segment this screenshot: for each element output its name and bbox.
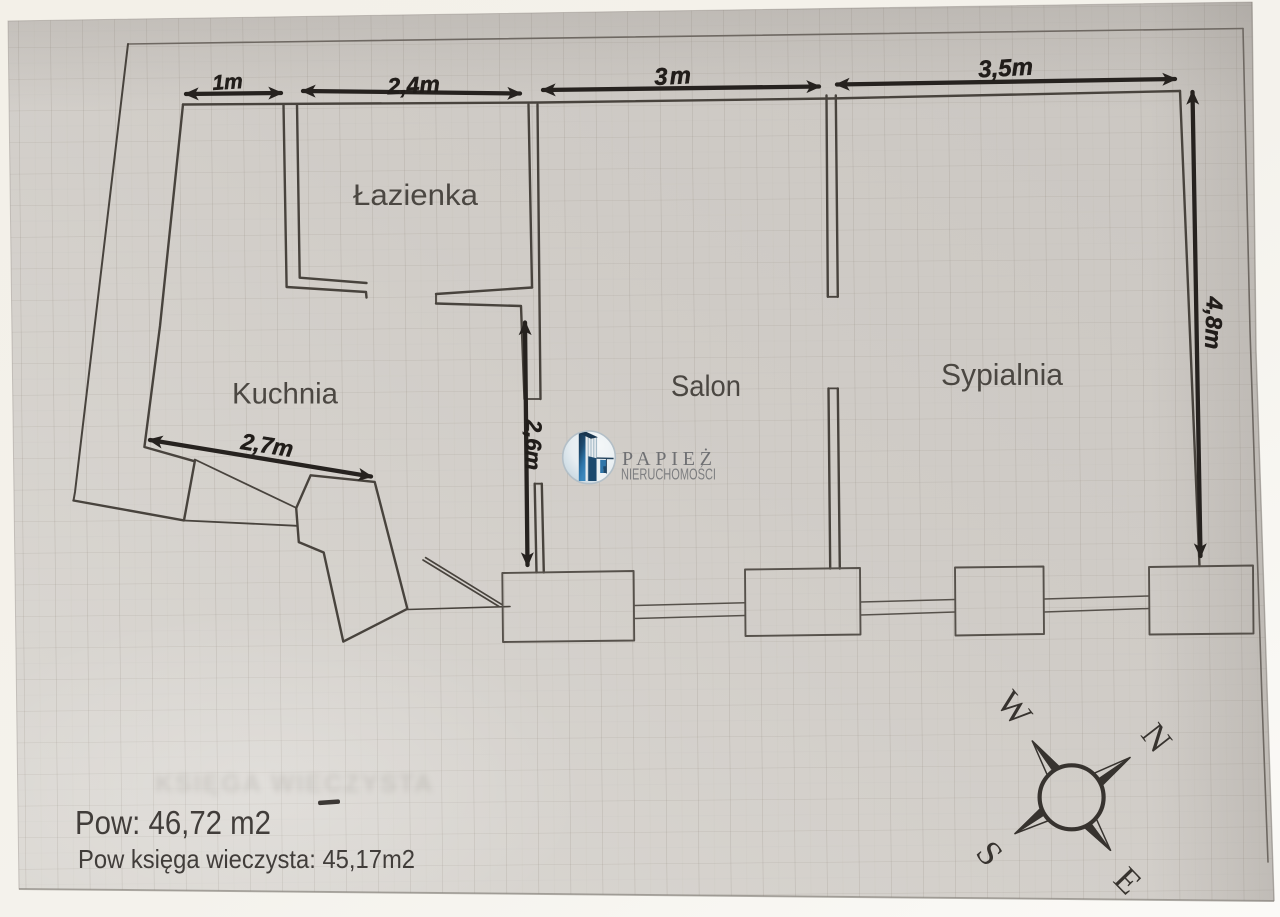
svg-text:KSIĘGA WIECZYSTA: KSIĘGA WIECZYSTA bbox=[155, 770, 434, 798]
svg-text:Salon: Salon bbox=[671, 370, 741, 403]
svg-text:Łazienka: Łazienka bbox=[353, 179, 478, 212]
svg-text:NIERUCHOMOŚCI: NIERUCHOMOŚCI bbox=[621, 465, 716, 484]
svg-text:1m: 1m bbox=[212, 70, 244, 95]
svg-text:3,5m: 3,5m bbox=[978, 54, 1034, 84]
svg-text:4,8m: 4,8m bbox=[1200, 295, 1228, 349]
svg-text:Kuchnia: Kuchnia bbox=[232, 378, 338, 411]
svg-text:Pow księga wieczysta: 45,17m2: Pow księga wieczysta: 45,17m2 bbox=[78, 844, 415, 874]
svg-text:3m: 3m bbox=[654, 62, 694, 91]
svg-text:2,6m: 2,6m bbox=[521, 419, 547, 471]
svg-text:Pow: 46,72 m2: Pow: 46,72 m2 bbox=[75, 804, 271, 841]
svg-text:Sypialnia: Sypialnia bbox=[941, 357, 1064, 392]
svg-text:2,4m: 2,4m bbox=[386, 71, 441, 100]
